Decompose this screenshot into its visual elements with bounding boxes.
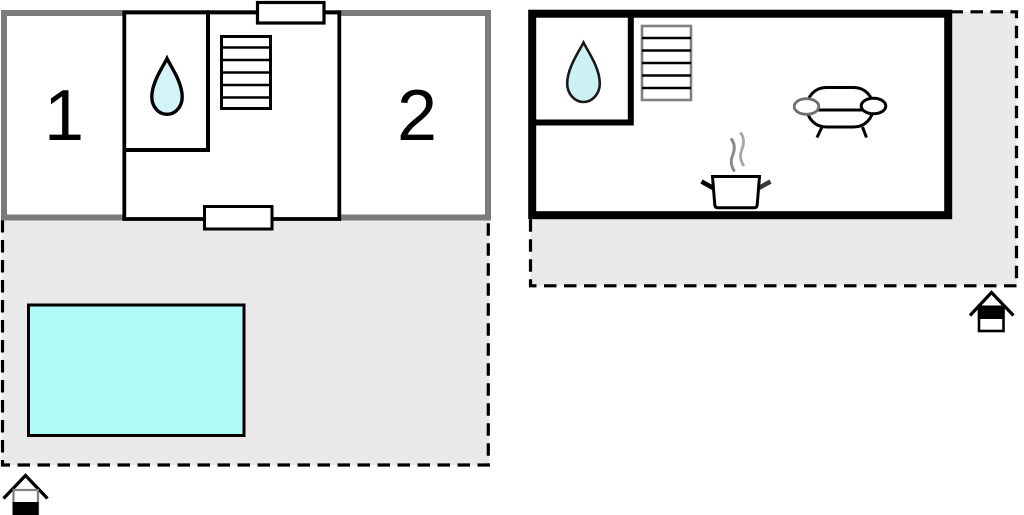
svg-text:1: 1 — [44, 76, 84, 156]
svg-text:2: 2 — [397, 76, 437, 156]
